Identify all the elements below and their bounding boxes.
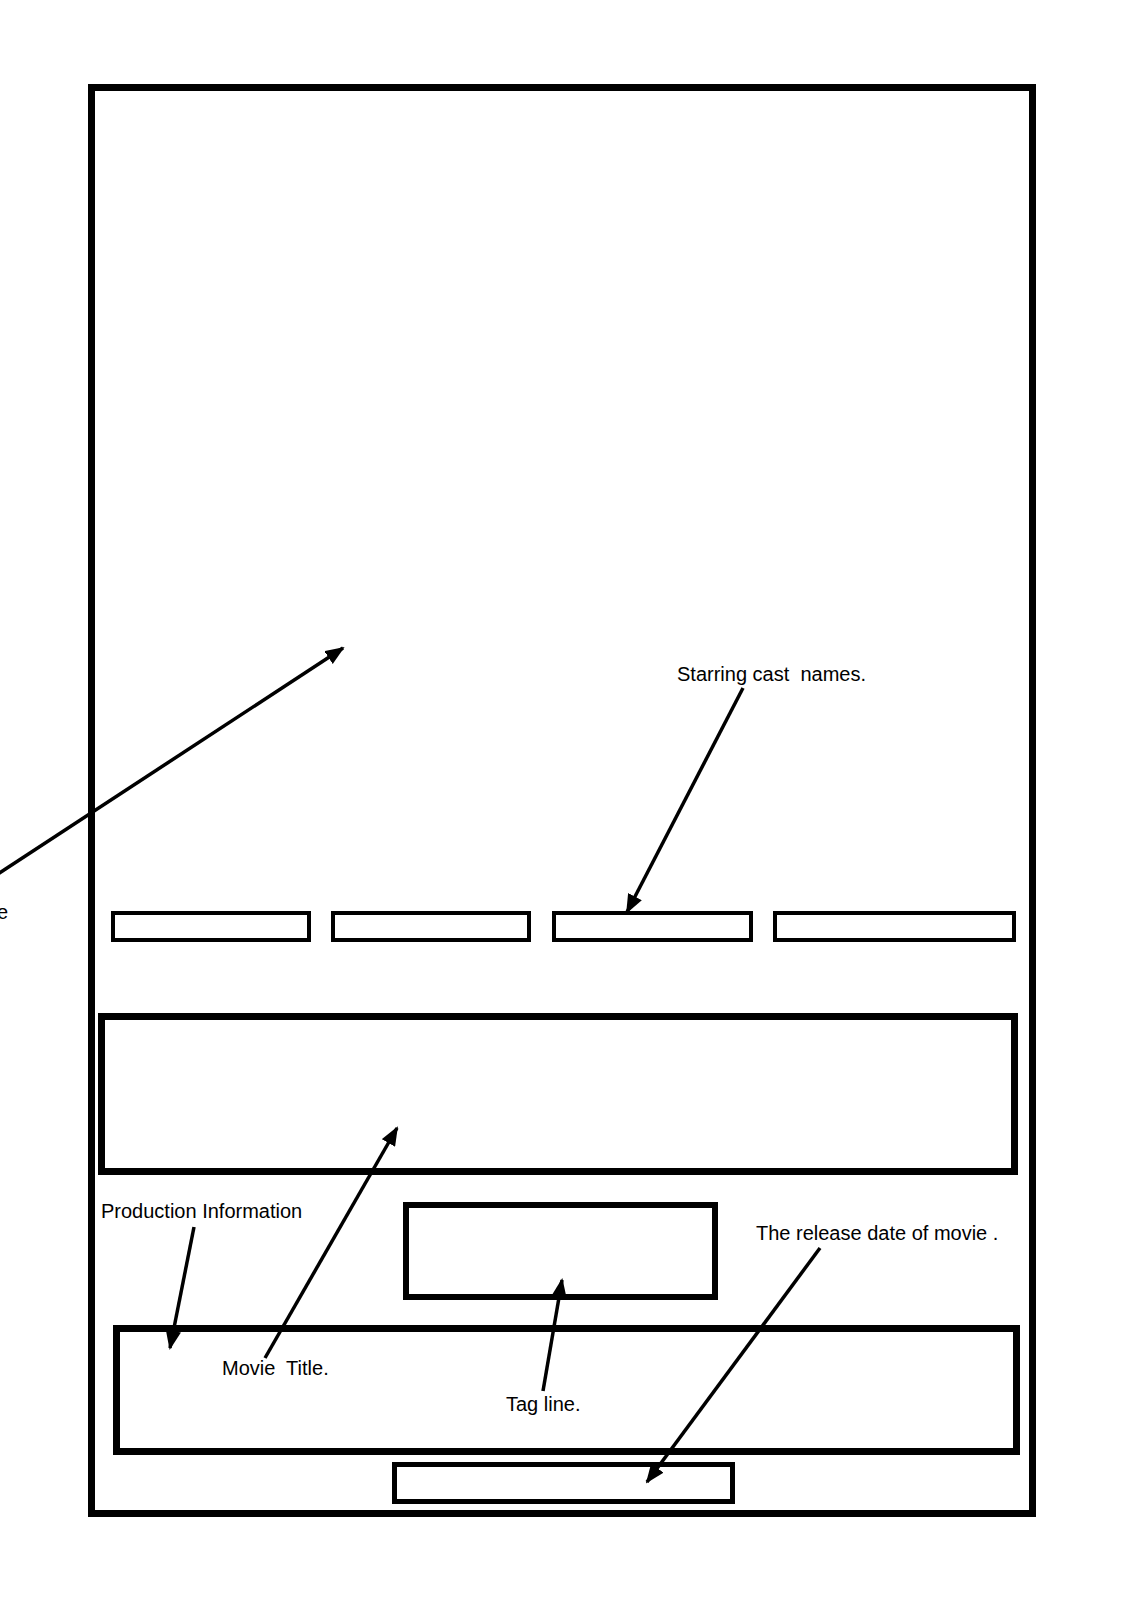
cast-name-box-4 bbox=[773, 911, 1016, 942]
movie-title-box bbox=[98, 1013, 1018, 1175]
production-information-box bbox=[113, 1325, 1020, 1455]
tag-line-box bbox=[403, 1202, 718, 1300]
release-date-box bbox=[392, 1462, 735, 1504]
cast-name-box-3 bbox=[552, 911, 753, 942]
starring-cast-label: Starring cast names. bbox=[677, 663, 866, 685]
movie-poster-wireframe: e Starring cast names. Production Inform… bbox=[0, 0, 1131, 1600]
poster-image-label-cutoff: e bbox=[0, 901, 8, 923]
cast-name-box-1 bbox=[111, 911, 311, 942]
release-date-label: The release date of movie . bbox=[756, 1222, 998, 1244]
poster-frame bbox=[88, 84, 1036, 1517]
production-information-label: Production Information bbox=[101, 1200, 302, 1222]
movie-title-label: Movie Title. bbox=[222, 1357, 329, 1379]
cast-name-box-2 bbox=[331, 911, 531, 942]
tag-line-label: Tag line. bbox=[506, 1393, 581, 1415]
